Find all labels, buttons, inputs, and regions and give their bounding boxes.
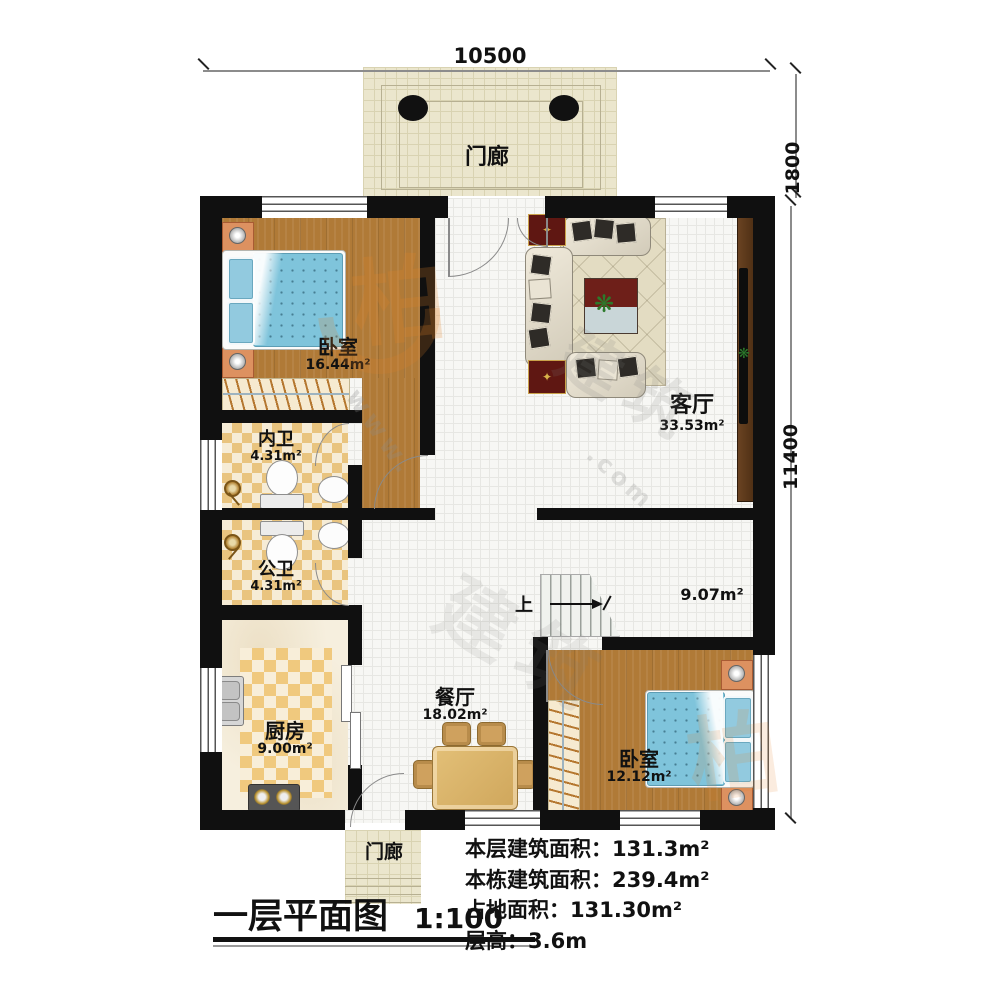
room-label-dining: 餐厅18.02m² xyxy=(415,686,495,724)
sofa-cushion xyxy=(597,359,618,380)
sink-icon xyxy=(318,522,350,549)
stair-hall-area-label: 9.07m² xyxy=(676,586,748,604)
room-label-inner-bath: 内卫4.31m² xyxy=(246,430,306,465)
stair-arrow-head xyxy=(592,599,603,609)
info-line-footprint: 占地面积：131.30m² xyxy=(465,895,710,926)
stair-up-label: 上 xyxy=(512,596,536,616)
dining-table xyxy=(432,746,518,810)
room-label-porch-bottom: 门廊 xyxy=(352,842,416,863)
wall-segment xyxy=(537,508,753,520)
sofa-cushion xyxy=(593,218,615,240)
wall-segment xyxy=(367,196,448,218)
building-info-block: 本层建筑面积：131.3m² 本栋建筑面积：239.4m² 占地面积：131.3… xyxy=(465,834,710,956)
wall-segment xyxy=(540,810,620,830)
drawing-title-row: 一层平面图 1:100 xyxy=(213,888,503,939)
pillow xyxy=(227,301,255,345)
room-label-porch-top: 门廊 xyxy=(452,146,522,171)
sofa-cushion xyxy=(571,220,594,243)
room-label-living: 客厅33.53m² xyxy=(652,394,732,434)
lamp-icon xyxy=(229,227,246,244)
wardrobe-bedroom-2 xyxy=(548,700,580,812)
window xyxy=(753,655,775,808)
pillow xyxy=(723,696,753,740)
dimension-line-right xyxy=(790,206,792,819)
dimension-width-top: 10500 xyxy=(415,44,565,68)
kitchen-sliding-door xyxy=(350,712,361,769)
sofa-cushion xyxy=(615,222,637,244)
wall-segment xyxy=(348,520,362,558)
porch-column-left xyxy=(398,95,428,121)
room-label-public-bath: 公卫4.31m² xyxy=(246,560,306,595)
sink-icon xyxy=(318,476,350,503)
dimension-tick xyxy=(764,58,776,70)
wardrobe-bedroom-1 xyxy=(222,378,350,412)
pillow xyxy=(723,740,753,784)
wall-segment xyxy=(753,196,775,655)
pillow xyxy=(227,257,255,301)
wall-segment xyxy=(200,508,435,520)
corner-mat: ✦ xyxy=(528,360,566,394)
room-label-bedroom-1: 卧室16.44m² xyxy=(300,336,376,374)
shower-head-icon xyxy=(224,480,241,497)
wall-segment xyxy=(753,808,775,830)
wall-segment xyxy=(348,620,362,665)
lamp-icon xyxy=(229,353,246,370)
dining-chair xyxy=(442,722,471,746)
wall-segment xyxy=(405,810,465,830)
sofa-cushion xyxy=(528,278,551,299)
bed-sheet-fold xyxy=(253,253,287,345)
wall-segment xyxy=(602,637,753,650)
wall-segment xyxy=(200,410,362,423)
info-line-floor-area: 本层建筑面积：131.3m² xyxy=(465,834,710,865)
sofa-cushion xyxy=(530,254,553,277)
bed-sheet-fold xyxy=(689,692,723,784)
lamp-icon xyxy=(728,665,745,682)
window xyxy=(655,196,727,218)
sink-basin xyxy=(219,702,240,721)
burner-icon xyxy=(276,789,292,805)
window xyxy=(465,810,540,830)
wall-segment xyxy=(200,510,222,668)
dimension-tick xyxy=(197,58,209,70)
sink-basin xyxy=(219,681,240,700)
plant-small-icon: ❋ xyxy=(738,346,750,362)
floor-plan-canvas: ❋ ✦ ✦ ❋ xyxy=(0,0,1000,990)
dimension-tick xyxy=(789,62,801,74)
window xyxy=(200,668,222,752)
plant-icon: ❋ xyxy=(594,290,614,318)
burner-icon xyxy=(254,789,270,805)
dimension-porch-depth: 1800 xyxy=(782,138,802,198)
dining-chair xyxy=(477,722,506,746)
page-title: 一层平面图 xyxy=(213,888,388,939)
info-line-total-area: 本栋建筑面积：239.4m² xyxy=(465,865,710,896)
lamp-icon xyxy=(728,789,745,806)
sofa-cushion xyxy=(617,356,640,379)
wall-segment xyxy=(545,196,655,218)
room-label-kitchen: 厨房9.00m² xyxy=(250,720,320,758)
wall-segment xyxy=(200,810,345,830)
porch-column-right xyxy=(549,95,579,121)
dimension-line-top xyxy=(203,70,770,72)
stair-arrow-line xyxy=(550,603,594,605)
window xyxy=(620,810,700,830)
dimension-height-right: 11400 xyxy=(780,426,800,490)
room-label-bedroom-2: 卧室12.12m² xyxy=(598,748,680,786)
wall-segment xyxy=(348,465,362,508)
bedroom-2-door-leaf xyxy=(546,650,548,702)
info-line-storey-height: 层高：3.6m xyxy=(465,926,710,957)
wall-segment xyxy=(420,218,435,455)
toilet-tank xyxy=(260,494,304,509)
window xyxy=(262,196,367,218)
sofa-cushion xyxy=(528,327,551,350)
sofa-cushion xyxy=(530,302,552,324)
wall-segment xyxy=(200,196,222,440)
window xyxy=(200,440,222,510)
sofa-cushion xyxy=(575,357,597,379)
wall-segment xyxy=(200,605,362,620)
toilet-icon xyxy=(266,460,298,496)
